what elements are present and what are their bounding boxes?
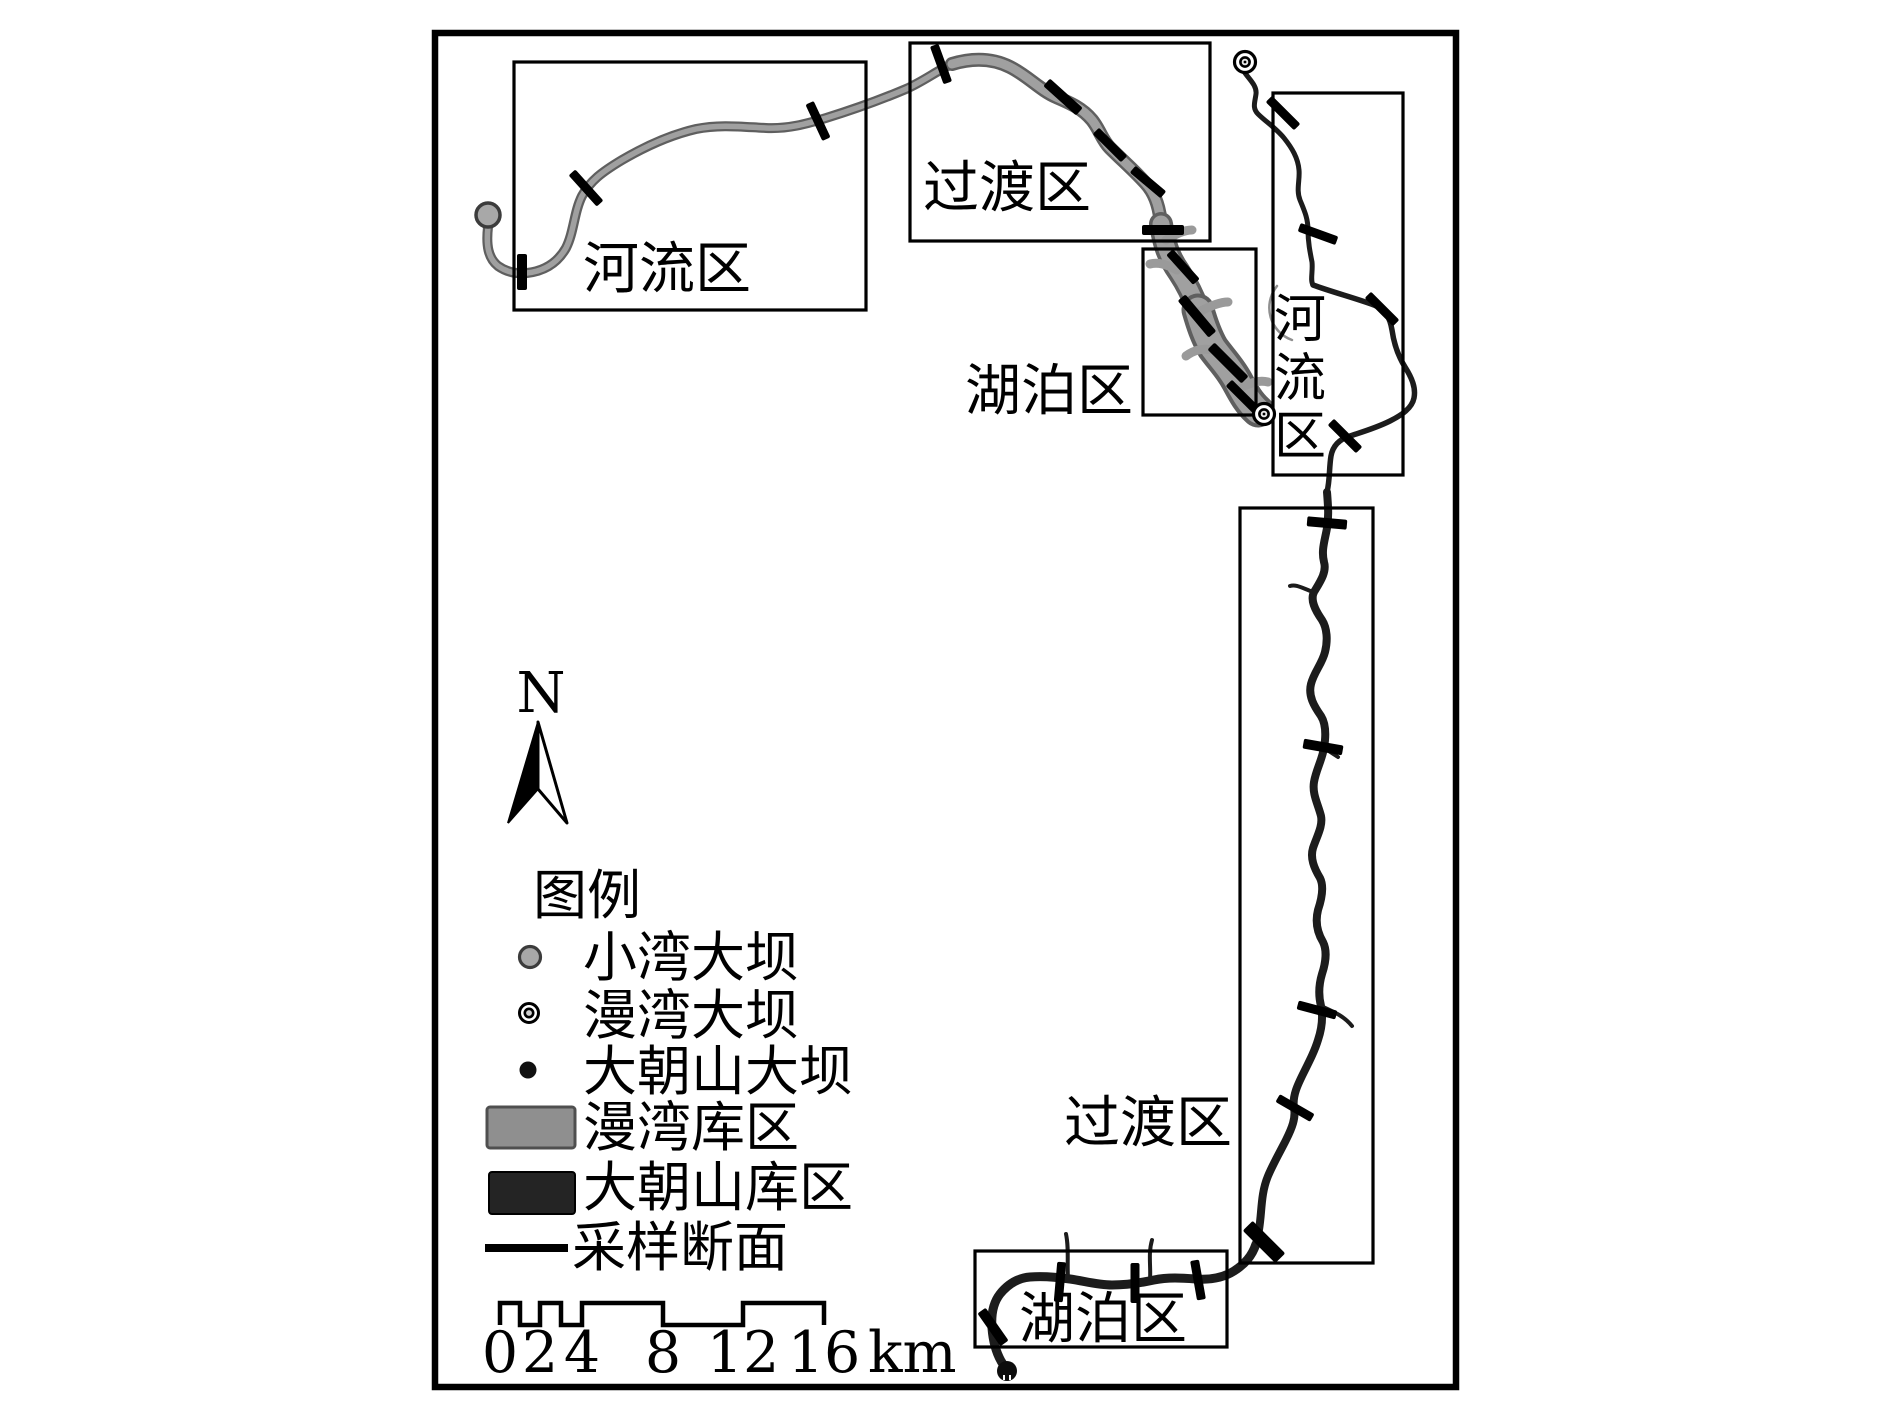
scale-tick-12: 12	[707, 1320, 780, 1386]
north-arrow-left-half	[508, 722, 538, 823]
legend-label: 小湾大坝	[583, 926, 799, 989]
dachaoshan-reservoir-river	[992, 73, 1415, 1371]
river-east-bulge	[1313, 285, 1415, 492]
scale-tick-16: 16	[788, 1320, 861, 1386]
legend-label: 漫湾大坝	[583, 984, 799, 1047]
scale-bar: 0 2 4 8 12 16 km	[482, 1303, 957, 1386]
river-transition-east	[1256, 492, 1328, 1244]
dam-marker-gray-circle	[476, 203, 500, 227]
legend-label: 采样断面	[572, 1216, 788, 1279]
dam-marker-double-circle	[1235, 52, 1256, 73]
dam-marker-part	[997, 1361, 1017, 1381]
double-circle-icon-inner	[525, 1009, 533, 1017]
dam-marker-part	[476, 203, 500, 227]
scale-tick-8: 8	[645, 1320, 681, 1386]
north-arrow-label: N	[517, 661, 566, 726]
zone-label-river-east: 河 流 区	[1274, 290, 1326, 467]
gray-swatch-icon	[487, 1107, 575, 1148]
black-circle-icon	[520, 1062, 537, 1079]
zone-box-transition-east	[1240, 508, 1373, 1263]
legend-label: 大朝山大坝	[583, 1040, 853, 1103]
dam-marker-double-circle	[1254, 404, 1275, 425]
black-line-icon	[485, 1244, 568, 1252]
legend: 图例 小湾大坝 漫湾大坝 大朝山大坝 漫湾库区 大朝山库区 采样断面	[485, 864, 853, 1279]
sampling-section-tick	[1307, 516, 1348, 529]
legend-row-dachaoshan-reservoir: 大朝山库区	[489, 1156, 853, 1219]
legend-row-sampling-section: 采样断面	[485, 1216, 788, 1279]
scale-unit: km	[868, 1320, 957, 1386]
zone-label-lake-north: 湖泊区	[965, 359, 1133, 424]
zone-label-lake-south: 湖泊区	[1019, 1287, 1187, 1352]
sampling-section-tick	[1142, 225, 1184, 235]
zone-label-river-east-char1: 河	[1274, 290, 1326, 350]
legend-label: 大朝山库区	[583, 1156, 853, 1219]
legend-row-manwan-reservoir: 漫湾库区	[487, 1096, 799, 1159]
legend-row-manwan-dam: 漫湾大坝	[520, 984, 800, 1047]
north-arrow: N	[508, 661, 567, 823]
gray-circle-icon	[520, 947, 541, 968]
manwan-reservoir-river	[487, 60, 1268, 411]
map-figure: 河流区 过渡区 湖泊区 河 流 区 过渡区 湖泊区 N 图例 小湾大坝 漫湾大坝…	[0, 0, 1890, 1417]
scale-tick-0: 0	[482, 1320, 518, 1386]
dam-marker-black-circle	[997, 1361, 1017, 1381]
sampling-section-tick	[1365, 292, 1400, 327]
legend-title: 图例	[533, 864, 641, 927]
scale-tick-4: 4	[564, 1320, 600, 1386]
zone-label-transition-east: 过渡区	[1064, 1091, 1232, 1156]
dam-marker-part	[1244, 61, 1247, 64]
dam-marker-part	[1263, 413, 1266, 416]
legend-row-xiaowan-dam: 小湾大坝	[520, 926, 800, 989]
zone-label-river-west: 河流区	[583, 237, 751, 302]
sampling-section-tick	[517, 254, 527, 290]
scale-tick-2: 2	[522, 1320, 558, 1386]
zone-label-river-east-char2: 流	[1274, 349, 1326, 409]
legend-row-dachaoshan-dam: 大朝山大坝	[520, 1040, 854, 1103]
sampling-section-tick	[1298, 223, 1339, 245]
zone-label-river-east-char3: 区	[1274, 407, 1326, 467]
black-swatch-icon	[489, 1172, 575, 1214]
legend-label: 漫湾库区	[583, 1096, 799, 1159]
north-arrow-right-half	[538, 722, 567, 823]
zone-label-transition-north: 过渡区	[923, 156, 1091, 221]
